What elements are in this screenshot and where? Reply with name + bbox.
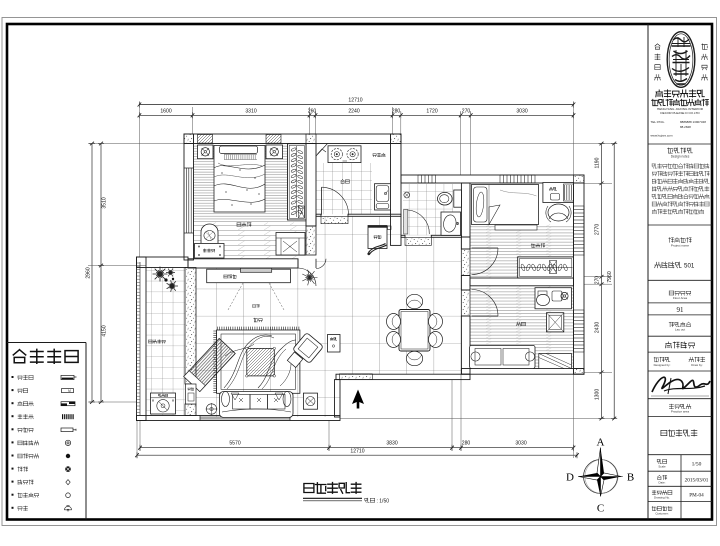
- svg-text:2770: 2770: [595, 224, 601, 235]
- svg-text:3310: 3310: [245, 108, 256, 114]
- svg-text:Date:: Date:: [659, 481, 666, 485]
- svg-text:Lay out: Lay out: [675, 328, 685, 332]
- svg-text:: 1/50: : 1/50: [377, 498, 390, 504]
- svg-text:A: A: [597, 437, 605, 449]
- svg-text:Draw by:: Draw by:: [691, 363, 703, 367]
- svg-text:B: B: [627, 472, 634, 484]
- svg-text:Practice area: Practice area: [671, 410, 690, 414]
- svg-text:260: 260: [308, 108, 317, 114]
- svg-text:12710: 12710: [350, 449, 364, 455]
- svg-text:2015/03/01: 2015/03/01: [685, 478, 709, 484]
- svg-text:270: 270: [462, 108, 471, 114]
- svg-text:280: 280: [462, 441, 471, 447]
- svg-text:88.2848: 88.2848: [680, 125, 691, 129]
- svg-text:PM-04: PM-04: [689, 493, 704, 499]
- svg-text:D: D: [566, 472, 574, 484]
- svg-text:3030: 3030: [516, 108, 527, 114]
- svg-text:C: C: [597, 503, 604, 515]
- svg-text:1/50: 1/50: [692, 462, 702, 468]
- svg-text:1300: 1300: [595, 389, 601, 400]
- svg-text:1720: 1720: [426, 108, 437, 114]
- svg-text:Drawing No.: Drawing No.: [654, 496, 670, 500]
- svg-text:Design notes: Design notes: [671, 155, 690, 159]
- svg-text:Project name: Project name: [671, 244, 690, 248]
- svg-text:DECOR PLEASE D CO.LTD: DECOR PLEASE D CO.LTD: [660, 111, 700, 115]
- svg-text:2240: 2240: [348, 108, 359, 114]
- svg-text:Floor Area: Floor Area: [673, 296, 688, 300]
- svg-text:1190: 1190: [595, 157, 601, 168]
- svg-text:4150: 4150: [102, 325, 108, 336]
- svg-text:12710: 12710: [348, 98, 362, 104]
- svg-text:501: 501: [684, 262, 695, 269]
- svg-text:Customer:: Customer:: [655, 512, 669, 516]
- svg-text:www.hyjxzs.com: www.hyjxzs.com: [651, 134, 674, 138]
- svg-text:280: 280: [392, 108, 401, 114]
- svg-text:Designed by:: Designed by:: [654, 363, 671, 367]
- svg-text:2430: 2430: [595, 322, 601, 333]
- svg-text:8886888 13907348: 8886888 13907348: [680, 120, 706, 124]
- svg-text:1600: 1600: [160, 108, 171, 114]
- svg-text:3830: 3830: [386, 441, 397, 447]
- svg-text:5570: 5570: [229, 441, 240, 447]
- svg-text:3030: 3030: [515, 441, 526, 447]
- svg-text:Scale: Scale: [658, 465, 666, 469]
- svg-text:M: M: [68, 389, 71, 393]
- svg-text:TEL:0734-: TEL:0734-: [651, 120, 665, 124]
- svg-text:91: 91: [677, 306, 685, 314]
- svg-text:3510: 3510: [102, 197, 108, 208]
- svg-text:2960: 2960: [86, 267, 92, 278]
